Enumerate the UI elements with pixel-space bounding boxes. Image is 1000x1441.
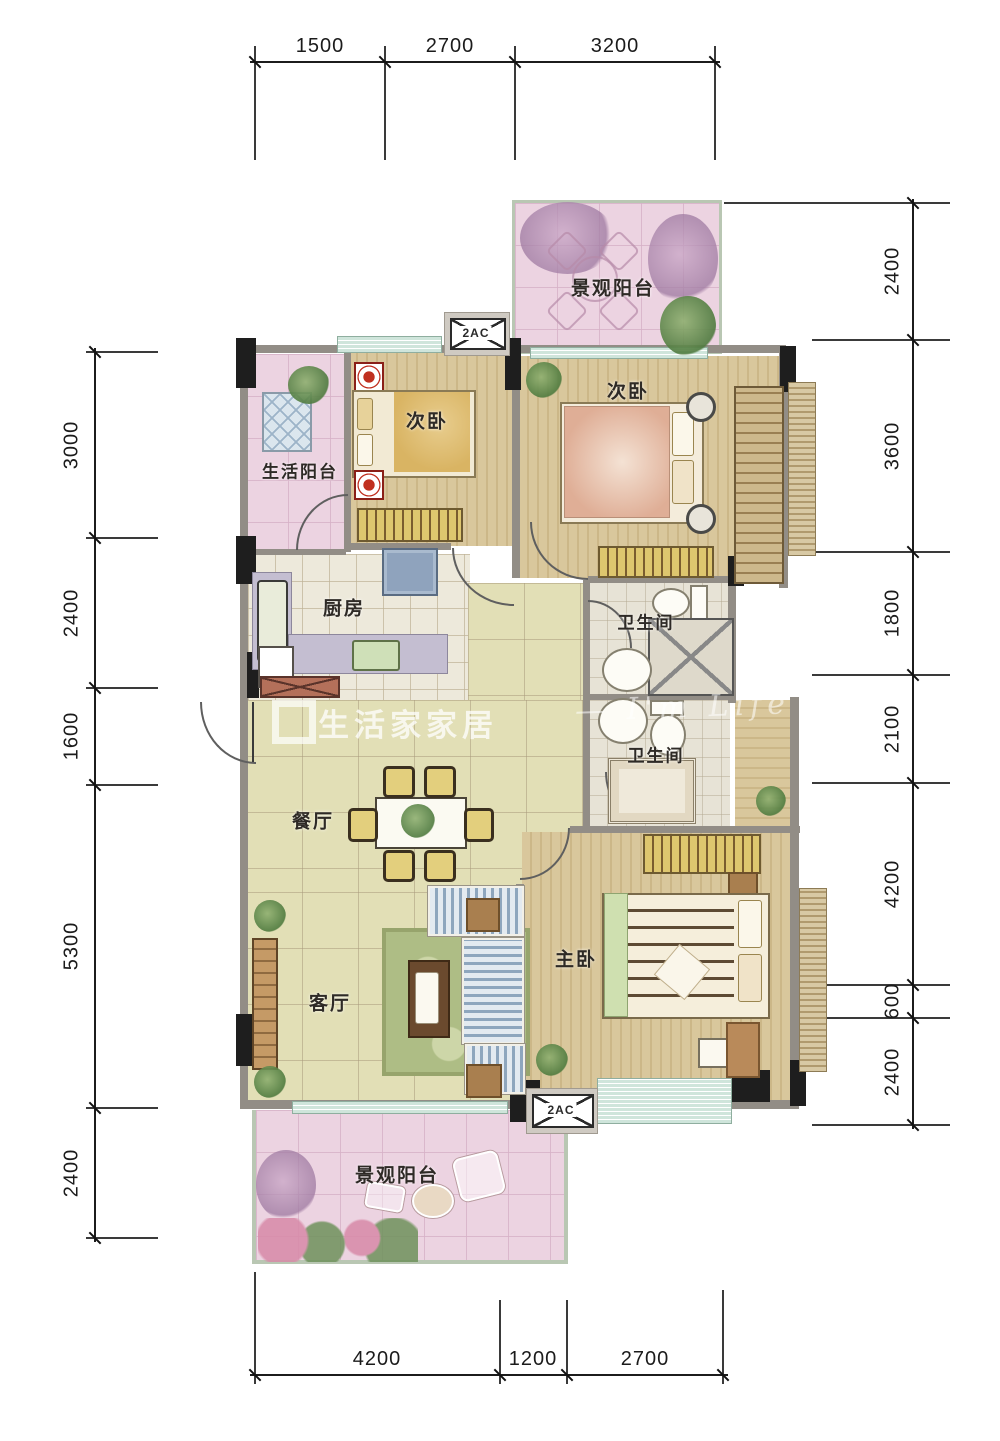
bay-window-seat — [799, 888, 827, 1072]
dim-value: 3600 — [882, 422, 905, 471]
tree — [648, 214, 718, 304]
dining-chair — [383, 766, 415, 798]
room-label-master: 主卧 — [555, 945, 597, 972]
bay-window — [597, 1078, 732, 1124]
dim-line-bottom — [250, 1374, 728, 1376]
entry-door-arc — [200, 702, 256, 764]
dim-value: 2400 — [61, 1149, 84, 1198]
dim-value: 2400 — [882, 247, 905, 296]
dresser — [726, 1022, 760, 1078]
dresser — [598, 546, 714, 578]
dining-chair — [383, 850, 415, 882]
plant — [254, 1066, 286, 1098]
bay-window-seat — [788, 382, 816, 556]
extension-line — [566, 1300, 568, 1384]
pillow — [357, 434, 373, 466]
flower-bed — [258, 1218, 418, 1262]
dim-value: 2400 — [61, 589, 84, 638]
dim-value: 4200 — [882, 860, 905, 909]
toilet-tank — [690, 585, 708, 621]
ac-label: 2AC — [545, 1103, 576, 1117]
pillow — [738, 954, 762, 1002]
sofa — [462, 938, 524, 1044]
dim-value: 3200 — [591, 35, 640, 58]
plant — [536, 1044, 568, 1076]
tv-cabinet — [252, 938, 278, 1070]
watermark-logo — [272, 700, 316, 744]
room-label-bath-a: 卫生间 — [618, 609, 675, 634]
wall-column — [236, 338, 256, 388]
balcony-table — [412, 1184, 454, 1218]
sink — [602, 648, 652, 692]
stool — [686, 504, 716, 534]
window — [292, 1101, 508, 1114]
bench — [357, 508, 463, 542]
dim-value: 600 — [882, 983, 905, 1019]
extension-line — [254, 1272, 256, 1384]
side-table — [466, 1064, 502, 1098]
dim-value: 1600 — [61, 712, 84, 761]
extension-line — [722, 1290, 724, 1384]
room-label-bath-b: 卫生间 — [628, 742, 685, 767]
dim-value: 2700 — [621, 1348, 670, 1371]
dim-value: 2700 — [426, 35, 475, 58]
pillow — [357, 398, 373, 430]
plant — [288, 366, 330, 404]
room-label-bedroom-b: 次卧 — [607, 377, 649, 404]
extension-line — [812, 551, 950, 553]
door-leaf — [252, 702, 254, 762]
room-label-kitchen: 厨房 — [323, 594, 365, 621]
dining-chair — [424, 766, 456, 798]
corridor-floor — [468, 583, 588, 703]
wardrobe — [643, 834, 761, 874]
watermark-brand: 生活家家居 — [318, 700, 498, 745]
bed-blanket — [564, 406, 670, 518]
dim-value: 1200 — [509, 1348, 558, 1371]
room-label-dining: 餐厅 — [292, 807, 334, 834]
dim-value: 5300 — [61, 922, 84, 971]
dim-value: 1800 — [882, 589, 905, 638]
shoe-cabinet — [260, 676, 340, 698]
room-label-balcony-top: 景观阳台 — [571, 274, 655, 301]
fridge — [382, 548, 438, 596]
ac-label: 2AC — [460, 326, 491, 340]
extension-line — [499, 1300, 501, 1384]
window — [337, 336, 442, 353]
wall — [570, 826, 800, 833]
plant — [254, 900, 286, 932]
bath-mat — [608, 758, 696, 824]
dim-value: 2400 — [882, 1048, 905, 1097]
stove — [352, 640, 400, 671]
extension-line — [812, 339, 950, 341]
plant — [401, 804, 435, 838]
floor-plan-canvas: 1500 2700 3200 3000 2400 1600 5300 2400 … — [0, 0, 1000, 1441]
pillow — [738, 900, 762, 948]
bed-runner — [604, 893, 628, 1017]
dim-value: 2100 — [882, 705, 905, 754]
wall — [790, 697, 799, 1109]
dining-chair — [464, 808, 494, 842]
dim-value: 1500 — [296, 35, 345, 58]
nightstand-lamp — [354, 362, 384, 392]
room-label-living: 客厅 — [309, 989, 351, 1016]
plant — [756, 786, 786, 816]
stool — [686, 392, 716, 422]
room-label-bedroom-a: 次卧 — [406, 407, 448, 434]
extension-line — [812, 782, 950, 784]
nightstand-lamp — [354, 470, 384, 500]
extension-line — [812, 1124, 950, 1126]
pillow — [672, 460, 694, 504]
dim-value: 4200 — [353, 1348, 402, 1371]
dining-chair — [424, 850, 456, 882]
dim-value: 3000 — [61, 421, 84, 470]
dining-chair — [348, 808, 378, 842]
extension-line — [812, 674, 950, 676]
side-table — [466, 898, 500, 932]
wardrobe — [734, 386, 784, 584]
coffee-table-tray — [415, 972, 439, 1024]
plant — [526, 362, 562, 398]
room-label-balcony-bottom: 景观阳台 — [355, 1161, 439, 1188]
plant — [660, 296, 716, 356]
tree — [256, 1150, 316, 1220]
dim-line-top — [250, 61, 720, 63]
room-label-life-balcony: 生活阳台 — [262, 458, 338, 483]
